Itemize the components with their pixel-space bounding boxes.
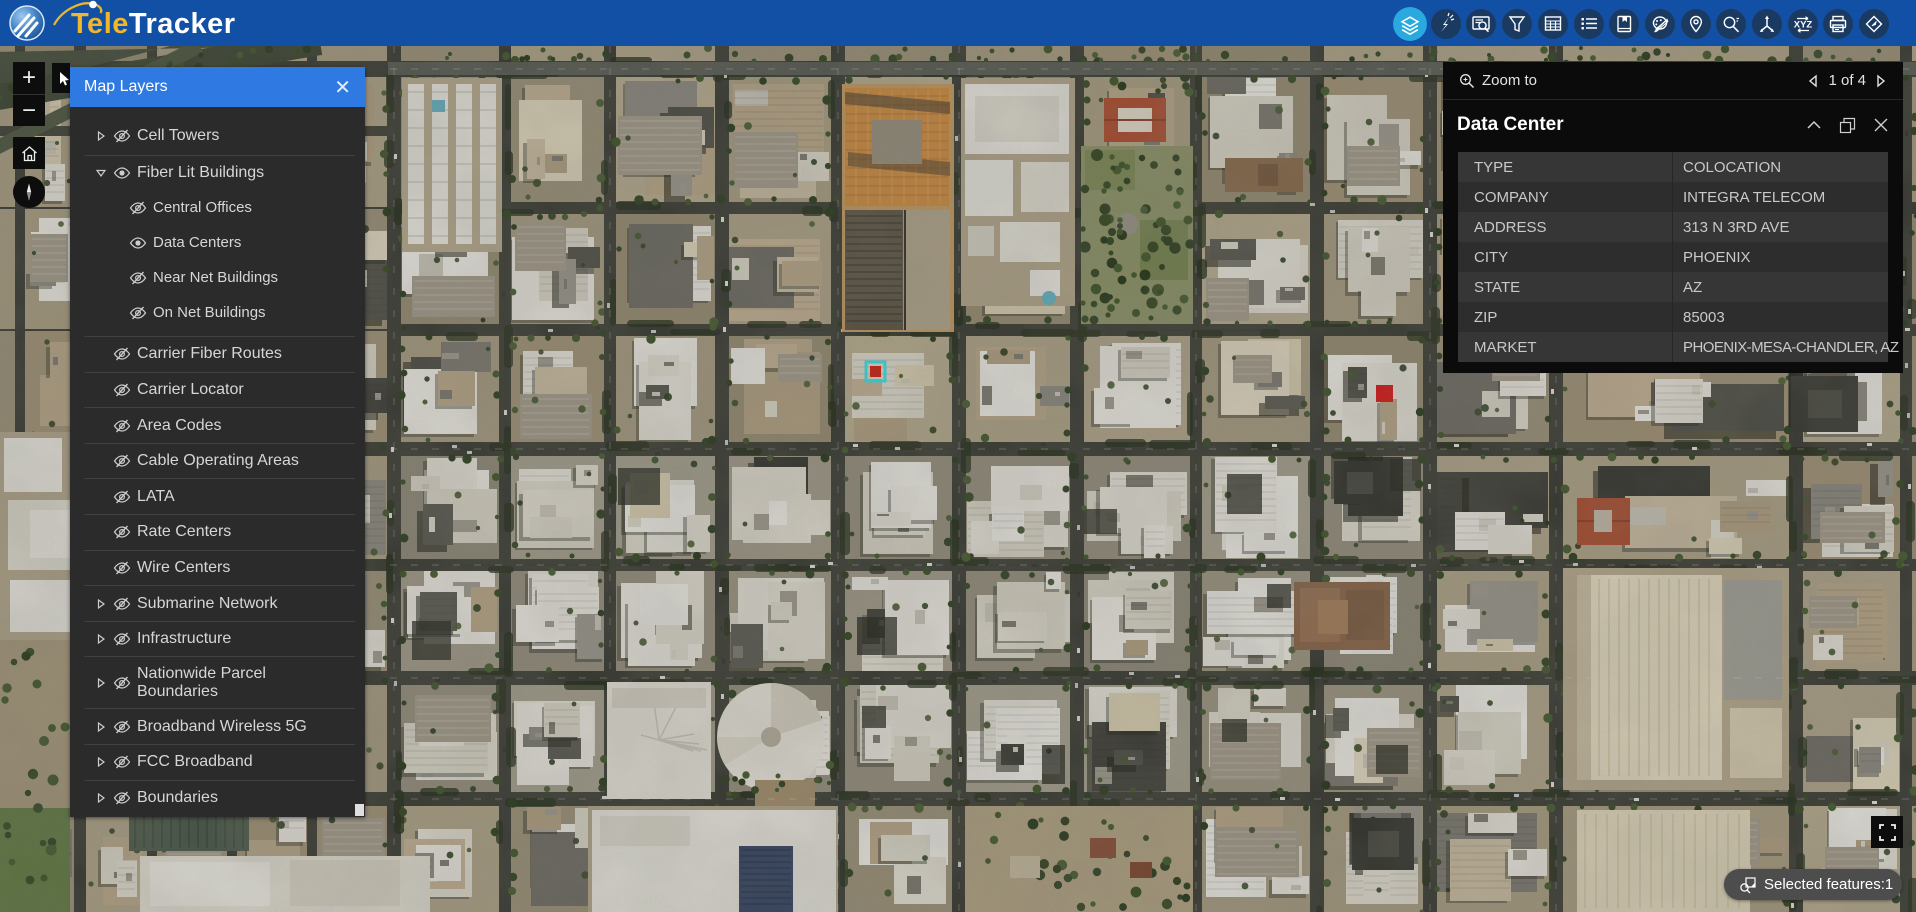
svg-text:XYZ: XYZ [1793,20,1812,31]
